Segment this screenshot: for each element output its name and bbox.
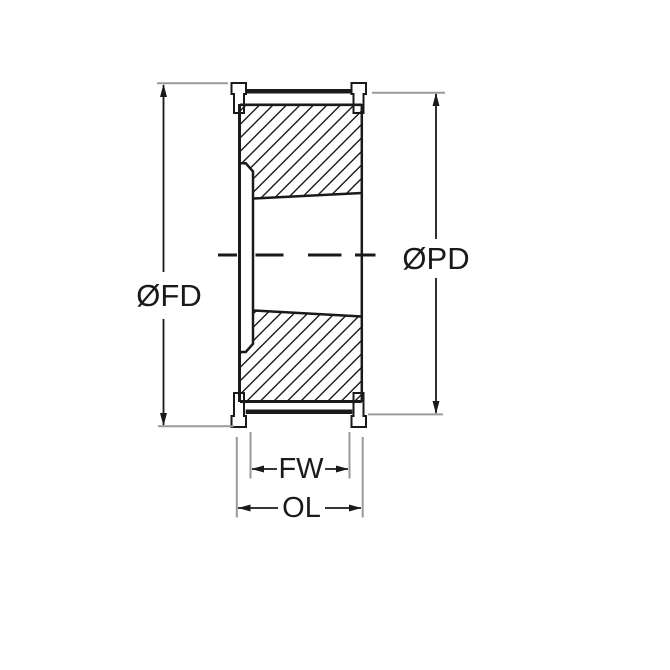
arrow-down-icon — [433, 401, 440, 414]
arrow-up-icon — [433, 93, 440, 106]
arrow-left-icon — [238, 505, 251, 512]
hatch-region-upper — [240, 106, 362, 199]
technical-drawing: ØFD ØPD FW OL — [0, 0, 670, 670]
arrow-right-icon — [349, 505, 362, 512]
arrow-up-icon — [160, 84, 167, 97]
dimension-flange-diameter: ØFD — [136, 84, 201, 426]
dimension-overall-length: OL — [238, 492, 362, 524]
hatch-region-lower — [240, 311, 362, 401]
dimension-pitch-diameter: ØPD — [402, 93, 469, 414]
dimension-face-width: FW — [252, 453, 349, 485]
arrow-left-icon — [252, 466, 265, 473]
label-face-width: FW — [278, 453, 324, 485]
arrow-right-icon — [336, 466, 349, 473]
bush-flange — [240, 163, 254, 352]
pulley-section-drawing: ØFD ØPD FW OL — [0, 0, 670, 670]
label-pitch-diameter: ØPD — [402, 241, 469, 276]
label-overall-length: OL — [282, 492, 321, 524]
label-flange-diameter: ØFD — [136, 278, 201, 313]
arrow-down-icon — [160, 413, 167, 426]
pulley-body — [240, 91, 362, 412]
